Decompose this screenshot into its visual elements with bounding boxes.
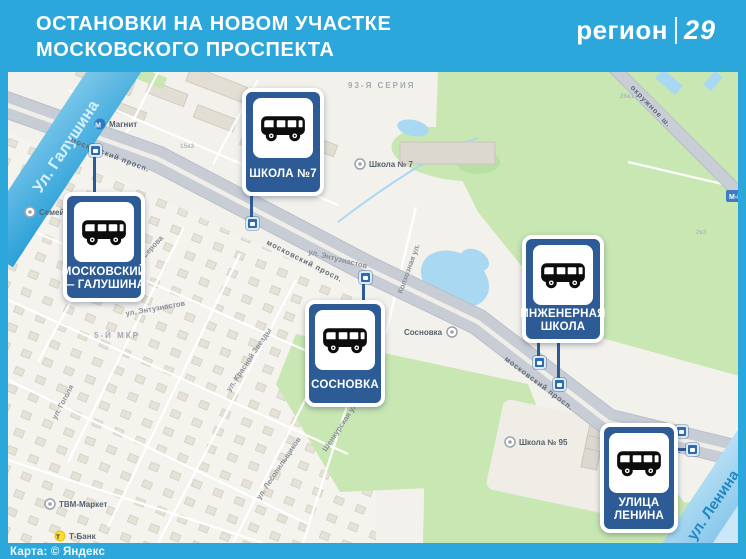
stop-label: УЛИЦА ЛЕНИНА bbox=[613, 493, 665, 529]
bus-sign bbox=[315, 310, 375, 370]
stop-badge-sosnovka: СОСНОВКА bbox=[305, 300, 385, 407]
stop-badge-ulitsa-lenina: УЛИЦА ЛЕНИНА bbox=[600, 423, 678, 533]
bus-stop-marker bbox=[686, 443, 699, 456]
infographic-canvas: ОСТАНОВКИ НА НОВОМ УЧАСТКЕ МОСКОВСКОГО П… bbox=[0, 0, 746, 559]
header: ОСТАНОВКИ НА НОВОМ УЧАСТКЕ МОСКОВСКОГО П… bbox=[0, 0, 746, 72]
page-title: ОСТАНОВКИ НА НОВОМ УЧАСТКЕ МОСКОВСКОГО П… bbox=[36, 11, 391, 63]
svg-text:Т: Т bbox=[56, 534, 60, 541]
bus-icon bbox=[538, 250, 588, 300]
stop-badge-moskovsky-galushina: МОСКОВСКИЙ — ГАЛУШИНА bbox=[63, 192, 145, 302]
bus-stop-marker bbox=[359, 271, 372, 284]
bus-icon bbox=[320, 315, 370, 365]
svg-text:2к3: 2к3 bbox=[696, 229, 707, 236]
svg-text:93-Я СЕРИЯ: 93-Я СЕРИЯ bbox=[348, 81, 415, 90]
svg-text:Школа № 95: Школа № 95 bbox=[519, 438, 568, 447]
poi-magnit: М Магнит bbox=[95, 119, 138, 130]
stop-label: МОСКОВСКИЙ — ГАЛУШИНА bbox=[61, 262, 148, 298]
svg-text:26к1: 26к1 bbox=[620, 93, 634, 100]
bus-stop-marker bbox=[533, 356, 546, 369]
bus-icon bbox=[79, 207, 129, 257]
stop-label: ИНЖЕНЕРНАЯ ШКОЛА bbox=[519, 305, 606, 339]
stop-label: ШКОЛА №7 bbox=[248, 158, 318, 192]
connector-inzh-2 bbox=[557, 343, 560, 380]
bus-sign bbox=[533, 245, 593, 305]
svg-text:ТВМ-Маркет: ТВМ-Маркет bbox=[59, 500, 107, 509]
poi-tvm-market: ТВМ-Маркет bbox=[45, 499, 107, 509]
logo-divider bbox=[675, 17, 677, 44]
bus-stop-marker bbox=[89, 144, 102, 157]
logo-text: регион bbox=[576, 15, 668, 46]
svg-text:5-Й МКР: 5-Й МКР bbox=[94, 331, 140, 340]
title-line-1: ОСТАНОВКИ НА НОВОМ УЧАСТКЕ bbox=[36, 11, 391, 37]
poi-school95: Школа № 95 bbox=[505, 437, 568, 447]
logo-number: 29 bbox=[684, 15, 716, 46]
svg-text:М-8: М-8 bbox=[729, 194, 738, 201]
bus-sign bbox=[74, 202, 134, 262]
svg-text:Сосновка: Сосновка bbox=[404, 328, 443, 337]
svg-text:Школа № 7: Школа № 7 bbox=[369, 160, 414, 169]
bus-stop-marker bbox=[553, 378, 566, 391]
stop-label: СОСНОВКА bbox=[310, 370, 380, 403]
poi-sosnovka: Сосновка bbox=[404, 327, 457, 337]
svg-text:15к3: 15к3 bbox=[180, 143, 194, 150]
connector-sosnovka bbox=[362, 282, 365, 300]
bus-icon bbox=[258, 103, 308, 153]
svg-text:Магнит: Магнит bbox=[109, 120, 137, 129]
svg-text:Т-Банк: Т-Банк bbox=[69, 532, 97, 541]
bus-icon bbox=[614, 438, 664, 488]
bus-stop-marker bbox=[246, 217, 259, 230]
title-line-2: МОСКОВСКОГО ПРОСПЕКТА bbox=[36, 37, 391, 63]
poi-t-bank: Т Т-Банк bbox=[55, 531, 97, 541]
connector-galushina bbox=[93, 154, 96, 192]
map-attribution: Карта: © Яндекс bbox=[10, 546, 105, 558]
bus-sign bbox=[253, 98, 313, 158]
stop-badge-shkola-7: ШКОЛА №7 bbox=[242, 88, 324, 196]
bus-sign bbox=[609, 433, 669, 493]
region29-logo: регион 29 bbox=[576, 15, 716, 46]
stop-badge-inzhenernaya-shkola: ИНЖЕНЕРНАЯ ШКОЛА bbox=[522, 235, 604, 343]
poi-school7: Школа № 7 bbox=[355, 159, 414, 169]
svg-text:М: М bbox=[95, 123, 101, 130]
m8-road-badge: М-8 bbox=[726, 190, 738, 202]
